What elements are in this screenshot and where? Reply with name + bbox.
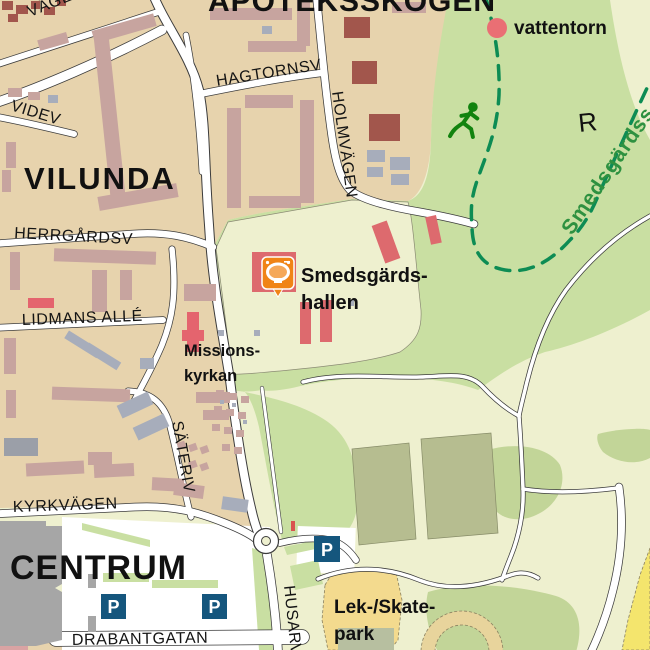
poi-label-playground-1: Lek-/Skate-	[334, 597, 435, 618]
poi-label-church-1: Missions-	[184, 342, 260, 360]
street-label-drabantgatan: DRABANTGATAN	[72, 630, 209, 649]
map-canvas: R P P P APOTEKSSKOGEN VILUNDA CENTRUM VÄ…	[0, 0, 650, 650]
poi-label-sports-hall-1: Smedsgärds-	[301, 265, 428, 287]
street-label-kyrkvagen: KYRKVÄGEN	[13, 494, 119, 516]
district-label-centrum: CENTRUM	[10, 549, 187, 587]
building	[88, 616, 96, 632]
building	[48, 95, 58, 103]
building	[262, 26, 272, 34]
district-label-apotekskogen: APOTEKSSKOGEN	[208, 0, 496, 18]
ancient-monument-symbol: R	[577, 106, 599, 138]
parking-letter: P	[321, 540, 333, 560]
poi-label-church-2: kyrkan	[184, 367, 237, 385]
district-label-vilunda: VILUNDA	[24, 161, 176, 196]
poi-label-playground-2: park	[334, 624, 375, 645]
poi-label-water-tower: vattentorn	[514, 18, 607, 39]
parking-icon: P	[202, 594, 227, 619]
sports-pitch-2	[421, 433, 498, 539]
sports-pitch-1	[352, 443, 416, 545]
poi-label-sports-hall-2: hallen	[301, 292, 359, 314]
parking-letter: P	[208, 597, 220, 617]
building	[291, 521, 295, 531]
parking-icon: P	[314, 536, 340, 562]
water-tower-dot	[487, 18, 507, 38]
roundabout-island	[262, 537, 271, 546]
parking-letter: P	[107, 597, 119, 617]
parking-icon: P	[101, 594, 126, 619]
map-svg: R P P P APOTEKSSKOGEN VILUNDA CENTRUM VÄ…	[0, 0, 650, 650]
